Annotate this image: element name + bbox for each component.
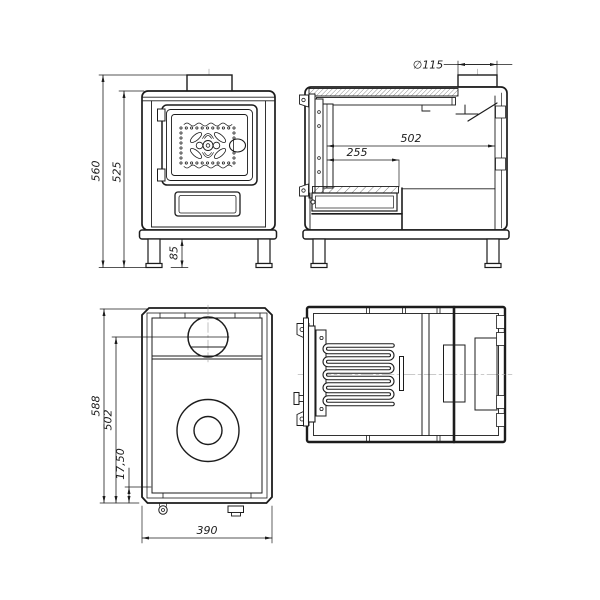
leg-right (258, 239, 270, 264)
latch-tab (228, 506, 244, 513)
dim-label-overall-height: 560 (90, 161, 103, 182)
section-view (294, 307, 512, 442)
firebox-shelf-hatched (313, 187, 399, 194)
dim-label-body-height: 525 (111, 162, 124, 183)
foot-left (146, 264, 162, 268)
drawer-knob (311, 200, 315, 204)
back-panel-clip (496, 158, 506, 170)
foot-right (256, 264, 272, 268)
section-door-assembly (294, 318, 326, 426)
leg-front (313, 239, 325, 264)
dim-label-plate-depth: 502 (102, 410, 115, 431)
hinge-pin (159, 506, 167, 514)
technical-drawing-canvas: 560 525 85 (0, 0, 600, 600)
dim-label-front-offset: 17,50 (114, 448, 127, 480)
front-view: 560 525 85 (90, 69, 277, 268)
latch-tab-grip (232, 513, 241, 517)
flue-collar (458, 75, 497, 87)
handle-knob-stem (299, 396, 304, 402)
door-handle (230, 139, 246, 152)
back-panel-clip (496, 106, 506, 118)
dim-label-leg-height: 85 (168, 246, 181, 260)
dim-label-overall-width: 390 (197, 524, 218, 537)
foot-rear (485, 264, 501, 268)
leg-rear (487, 239, 499, 264)
side-view: ∅115 502 255 (300, 59, 513, 268)
door-outer-plate (309, 94, 315, 198)
door-outer-plate (304, 318, 309, 426)
grate-side-rail (400, 357, 404, 391)
dim-label-flue-diameter: ∅115 (413, 59, 444, 72)
drawing-page: 560 525 85 (0, 0, 600, 600)
dim-label-firebox-depth: 255 (347, 146, 368, 159)
door-hinge-bottom (158, 169, 166, 181)
plan-view: 588 502 17,50 390 (90, 305, 273, 543)
door-slab (309, 326, 316, 422)
base-plate (303, 230, 509, 239)
door-hinge-top (158, 109, 166, 121)
hinge-tab-top (300, 95, 309, 107)
hinge-tab-bottom (300, 184, 309, 196)
flue-collar (187, 75, 232, 92)
base-plate (140, 230, 277, 239)
leg-left (148, 239, 160, 264)
top-plate-hatched (309, 89, 458, 97)
handle-knob (294, 393, 299, 405)
foot-front (311, 264, 327, 268)
dim-label-inner-depth: 502 (401, 132, 422, 145)
